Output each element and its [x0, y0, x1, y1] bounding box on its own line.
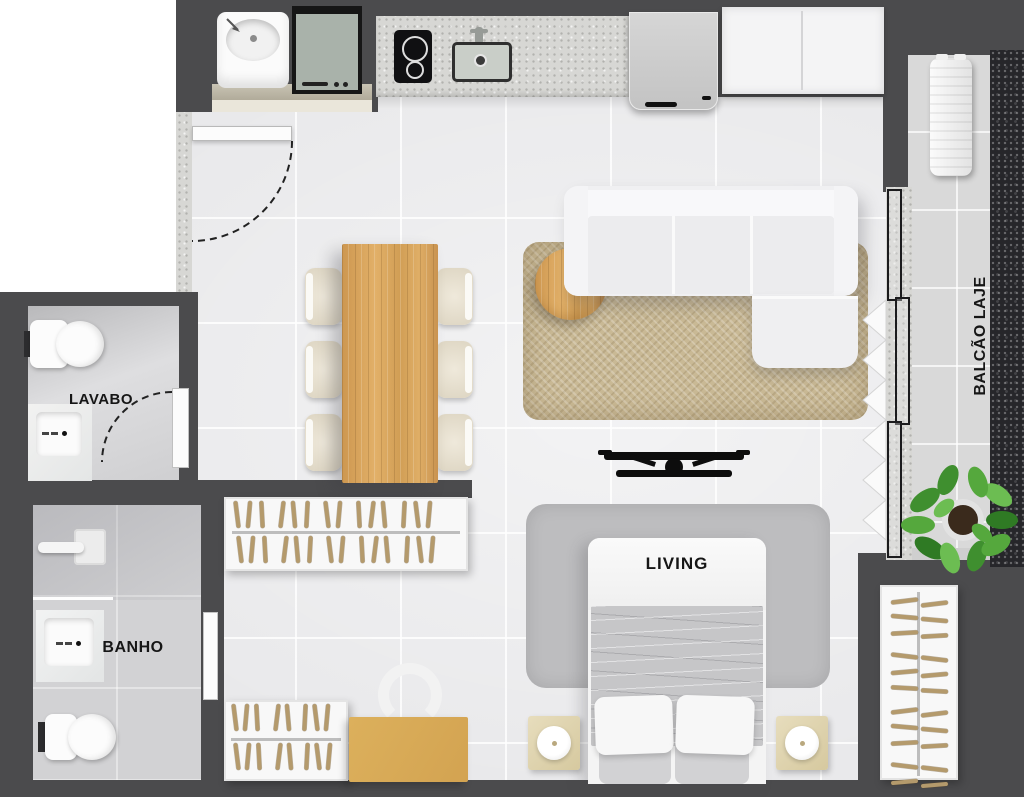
cooktop	[394, 30, 432, 83]
dining-chair	[436, 268, 473, 325]
sliding-door-track	[886, 187, 912, 560]
dining-chair	[305, 268, 342, 325]
banho-faucet	[65, 642, 72, 645]
cabinet-divider	[801, 11, 803, 90]
floor-plan: LIVING LAVABO BANHO BALCÃO LAJE TÉCNICA	[0, 0, 1024, 797]
balcony-sill	[908, 548, 990, 560]
sofa-armrest	[564, 186, 588, 296]
fridge	[629, 12, 718, 110]
sofa-seam	[750, 216, 753, 294]
bed: LIVING	[588, 538, 766, 784]
kitchen-sink	[452, 42, 512, 82]
burner	[406, 61, 424, 79]
dining-chair	[436, 341, 473, 398]
balcao-label-line1: BALCÃO LAJE	[971, 271, 990, 401]
fridge-hinge	[702, 96, 711, 100]
bed-foot-sheet	[588, 538, 766, 610]
wardrobe-bottom-rail	[231, 738, 341, 741]
dining-chair	[436, 414, 473, 471]
sofa-armrest	[834, 186, 858, 296]
nightstand-lamp	[537, 726, 571, 760]
laundry-drain	[250, 35, 257, 42]
balcao-label: BALCÃO LAJE TÉCNICA	[933, 271, 973, 401]
sofa-seam	[672, 216, 675, 294]
nightstand-lamp	[785, 726, 819, 760]
dining-chair	[305, 414, 342, 471]
banho-drain	[76, 641, 81, 646]
lavabo-toilet-bowl	[56, 321, 104, 367]
sofa	[564, 186, 858, 296]
sofa-chaise	[752, 296, 858, 368]
sink-drain	[476, 56, 485, 65]
banho-door	[203, 612, 218, 700]
washer-knob	[334, 82, 339, 87]
entry-door	[192, 126, 292, 141]
banho-faucet	[56, 642, 63, 645]
sliding-door-panel	[895, 297, 910, 425]
bed-pillow-white	[675, 695, 755, 756]
desk	[349, 717, 468, 782]
sliding-door-panel	[887, 421, 902, 558]
laundry-counter-edge	[212, 100, 372, 112]
washer-control-bar	[302, 82, 328, 86]
entry-wall-strip	[176, 112, 192, 292]
appliance-tab	[936, 54, 948, 60]
dining-chair	[305, 341, 342, 398]
bed-pillow-white	[594, 695, 674, 756]
upper-cabinets	[722, 7, 884, 94]
kitchen-faucet-bar	[470, 29, 488, 33]
dining-table	[342, 244, 438, 483]
lavabo-faucet	[51, 432, 58, 435]
sofa-backrest	[570, 190, 852, 218]
sofa-chaise-seam	[752, 296, 858, 299]
washing-machine	[292, 6, 362, 94]
banho-label: BANHO	[93, 639, 173, 657]
sliding-door-panel	[887, 189, 902, 301]
wardrobe-right-rail	[917, 592, 920, 776]
appliance-tab	[954, 54, 966, 60]
shower-glass	[33, 597, 113, 600]
wardrobe-top-rail	[232, 531, 460, 534]
lavabo-label: LAVABO	[61, 391, 141, 408]
washer-knob	[343, 82, 348, 87]
balcony-appliance	[930, 58, 972, 176]
lavabo-drain	[62, 431, 67, 436]
shower-head	[38, 542, 84, 553]
laundry-sink	[217, 12, 289, 88]
lavabo-door	[172, 388, 189, 468]
living-label: LIVING	[588, 554, 766, 574]
banho-toilet-bowl	[68, 714, 116, 760]
lavabo-faucet	[42, 432, 49, 435]
fridge-handle	[645, 102, 677, 107]
sofa-seat	[588, 216, 834, 294]
burner	[402, 36, 428, 62]
